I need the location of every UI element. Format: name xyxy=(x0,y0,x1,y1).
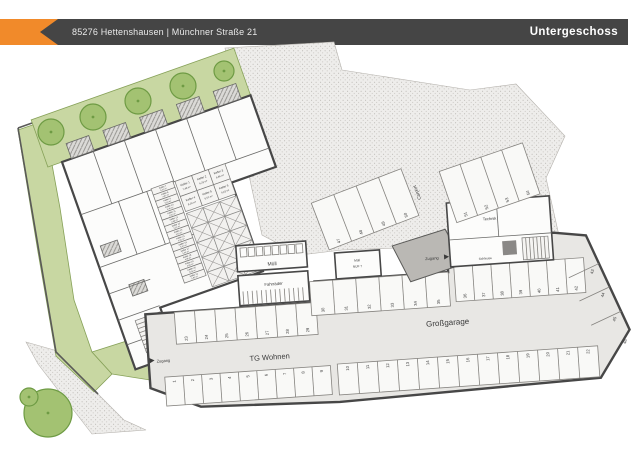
floorplan-drawing: Keller 17,49 m²Keller 26,32 m²Keller 36,… xyxy=(0,0,640,453)
stairs-garage xyxy=(522,236,549,260)
zugang-tg-label: Zugang xyxy=(156,358,170,364)
tree-icon xyxy=(38,119,64,145)
tree-trunk xyxy=(50,131,53,134)
tree-icon xyxy=(20,388,38,406)
tree-icon xyxy=(170,73,196,99)
tree-trunk xyxy=(92,116,95,119)
tree-trunk xyxy=(28,396,31,399)
tree-trunk xyxy=(47,412,50,415)
technik-label: Technik xyxy=(483,216,497,222)
tree-icon xyxy=(80,104,106,130)
zugang-technik-label: Zugang xyxy=(425,255,439,261)
tree-trunk xyxy=(137,100,140,103)
tree-trunk xyxy=(223,70,226,73)
tree-trunk xyxy=(182,85,185,88)
tree-icon xyxy=(125,88,151,114)
muell-nuf-label-2: NUF 7 xyxy=(353,264,363,269)
muell-nuf-label-1: Müll xyxy=(354,258,360,262)
elevator-shaft xyxy=(502,240,517,255)
muell-label: Müll xyxy=(267,261,277,268)
plan-page: 85276 Hettenshausen | Münchner Straße 21… xyxy=(0,0,640,453)
tree-icon xyxy=(214,61,234,81)
